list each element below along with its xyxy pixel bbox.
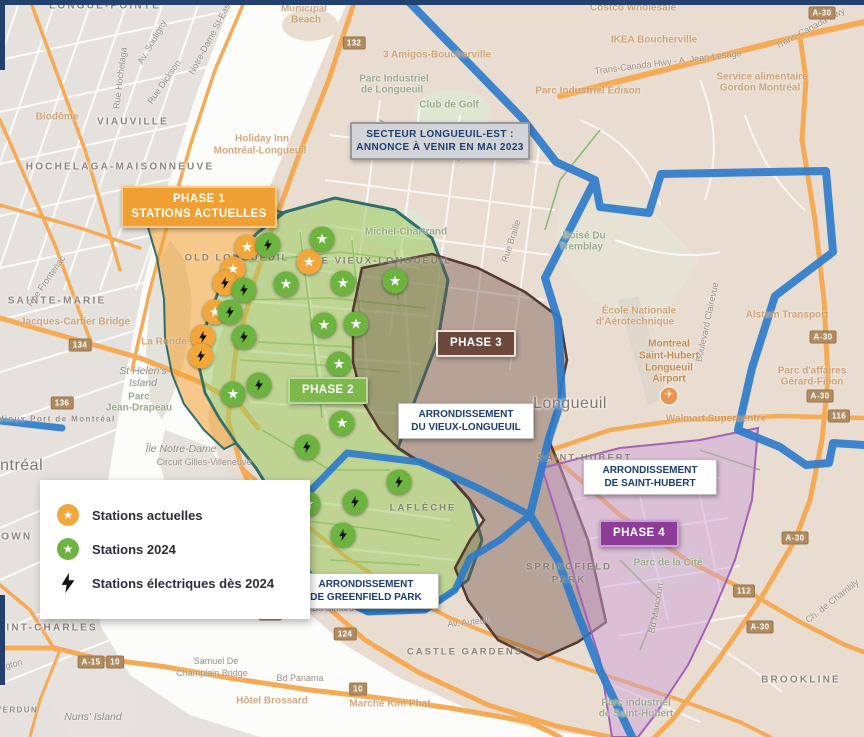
window-left-edge [0,0,5,70]
legend-item-stations-electriques: Stations électriques dès 2024 [56,571,294,595]
window-top-edge [0,0,864,5]
map-legend: ★ Stations actuelles ★ Stations 2024 Sta… [40,480,310,619]
station-2024-star-icon: ★ [56,538,80,560]
legend-item-stations-2024: ★ Stations 2024 [56,537,294,561]
legend-label: Stations électriques dès 2024 [92,576,274,591]
map-canvas[interactable]: LONGUE-POINTEVIAUVILLEHOCHELAGA-MAISONNE… [0,0,864,737]
legend-item-stations-actuelles: ★ Stations actuelles [56,503,294,527]
legend-label: Stations actuelles [92,508,203,523]
legend-label: Stations 2024 [92,542,176,557]
map-scenery [0,0,864,737]
window-left-edge [0,595,5,685]
electric-station-bolt-icon [56,572,80,594]
current-station-star-icon: ★ [56,504,80,526]
